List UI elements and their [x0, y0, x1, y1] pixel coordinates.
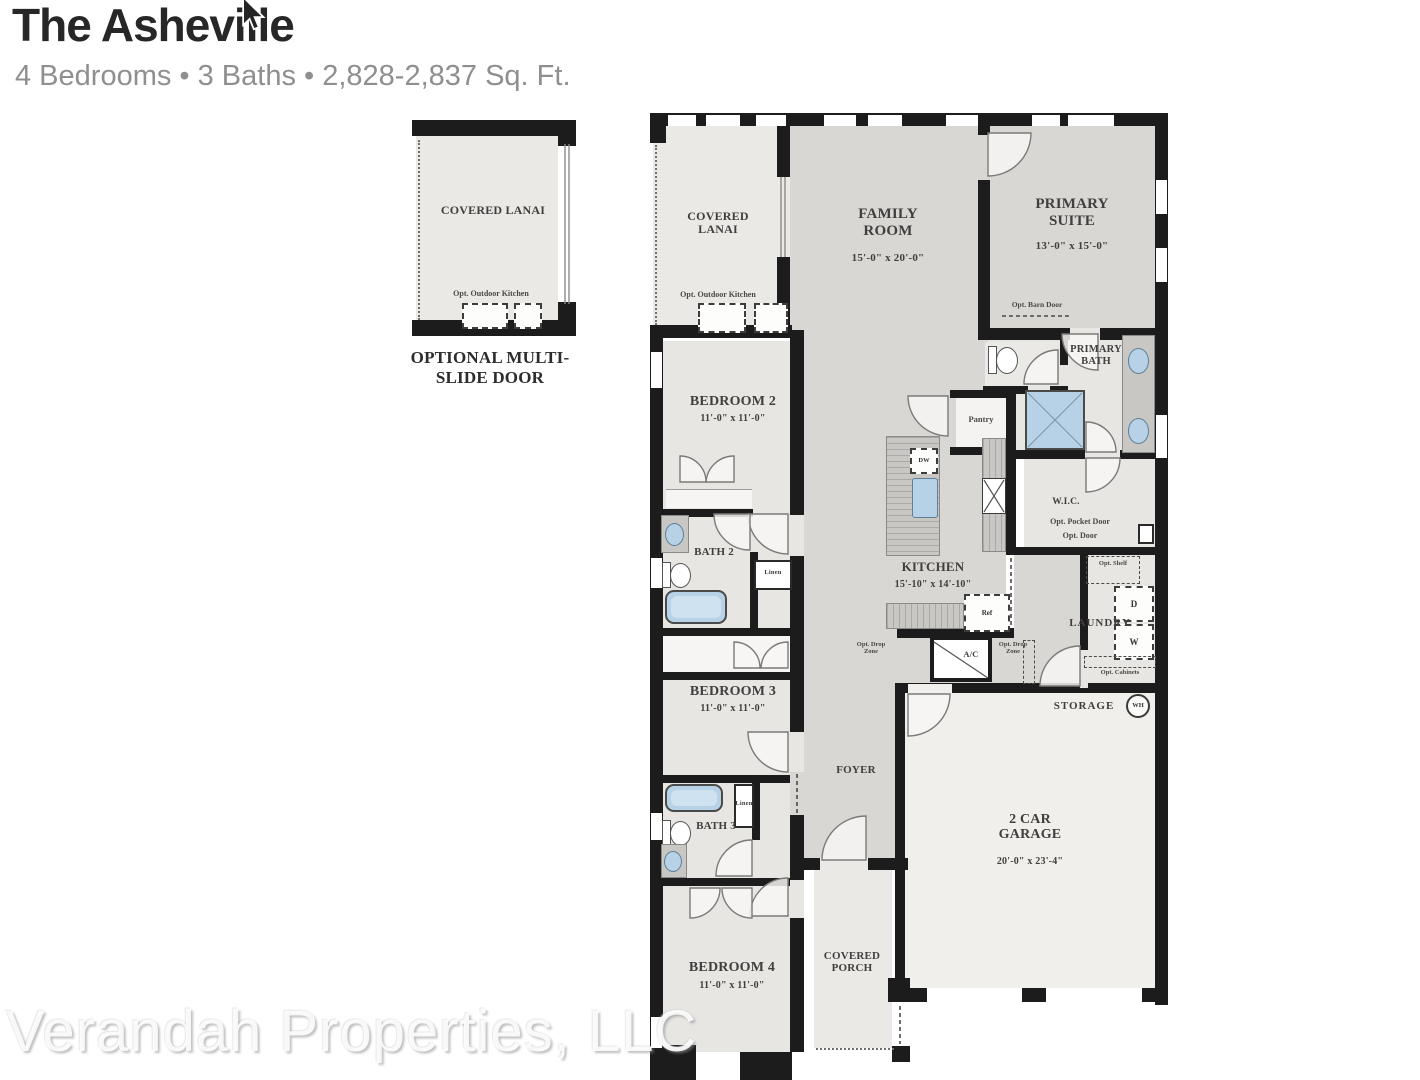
door-gap: [1070, 328, 1100, 340]
sink-icon: [1128, 418, 1149, 444]
window: [1156, 248, 1167, 282]
label-laundry: LAUNDRY: [1045, 617, 1155, 629]
toilet-icon: [670, 821, 691, 846]
shower-icon: [1025, 390, 1085, 450]
toilet-icon: [670, 563, 691, 588]
inset-lanai-label: COVERED LANAI: [438, 204, 548, 217]
wall-bath2-bottom: [663, 628, 790, 636]
window: [1156, 180, 1167, 214]
dishwasher-icon: DW: [910, 448, 938, 474]
label-bedroom4-dims: 11'-0" x 11'-0": [682, 980, 782, 991]
wall-bed4-bottom: [740, 1052, 792, 1080]
wall-family-suite: [978, 180, 990, 330]
garage-door-opening: [1046, 989, 1142, 1001]
door-gap: [908, 684, 952, 693]
label-bath3-name: BATH 3: [694, 820, 738, 832]
label-bath2-name: BATH 2: [692, 546, 736, 558]
wall: [558, 120, 576, 146]
label-primary-suite-dims: 13'-0" x 15'-0": [1012, 240, 1132, 252]
inset-outdoor-kitchen-label: Opt. Outdoor Kitchen: [428, 289, 554, 298]
wall: [412, 120, 576, 136]
water-heater-icon: WH: [1126, 694, 1150, 718]
range-icon: [982, 478, 1006, 514]
wall-right: [1155, 113, 1168, 1005]
mouse-cursor-icon: [237, 0, 267, 31]
window: [1068, 115, 1114, 126]
label-porch: COVERED PORCH: [818, 950, 886, 974]
wall-garage-bottom-c: [1142, 988, 1168, 1002]
label-wic-door: Opt. Door: [1042, 531, 1118, 540]
sink-icon: [664, 851, 682, 872]
inset-open-edge-dotted: [418, 140, 420, 320]
wall-bed3-bottom: [663, 775, 790, 783]
label-wic: W.I.C.: [1044, 497, 1088, 507]
window: [946, 115, 978, 126]
door-gap: [790, 515, 804, 556]
option-box: [1138, 524, 1154, 544]
wall-bath3-bottom: [663, 878, 790, 886]
label-lanai: COVERED LANAI: [668, 210, 768, 236]
label-primary-suite: PRIMARY SUITE: [1022, 196, 1122, 229]
porch-open-edge-dotted: [816, 1048, 894, 1050]
label-bedroom3-dims: 11'-0" x 11'-0": [684, 703, 782, 714]
window: [668, 115, 696, 126]
watermark: Verandah Properties, LLC: [6, 998, 697, 1065]
window: [651, 558, 662, 588]
label-dropzone-2: Opt. Drop Zone: [998, 641, 1028, 656]
label-bedroom3: BEDROOM 3: [678, 684, 788, 699]
wall-garage-bottom-b: [1022, 988, 1046, 1002]
toilet-icon: [996, 347, 1018, 374]
label-storage: STORAGE: [1046, 700, 1122, 712]
sink-icon: [665, 523, 684, 546]
sink-icon: [1128, 348, 1149, 374]
window: [651, 813, 662, 840]
label-kitchen-dims: 15'-10" x 14'-10": [876, 579, 990, 590]
window: [868, 115, 902, 126]
label-opt-cabinets: Opt. Cabinets: [1082, 669, 1158, 676]
wall-post: [650, 113, 666, 143]
inset-caption: OPTIONAL MULTI-SLIDE DOOR: [398, 348, 582, 389]
wall-wing-right-c: [790, 815, 804, 880]
wall-pantry-top: [950, 390, 1008, 398]
wall-wing-right-b: [790, 556, 804, 732]
label-ac: A/C: [954, 650, 988, 659]
door-gap: [1085, 450, 1120, 459]
label-lanai-opt: Opt. Outdoor Kitchen: [652, 290, 784, 299]
wall-wing-right-d: [790, 918, 804, 1052]
door-gap: [790, 732, 804, 772]
page-subtitle: 4 Bedrooms • 3 Baths • 2,828-2,837 Sq. F…: [15, 60, 571, 93]
label-bedroom2-dims: 11'-0" x 11'-0": [684, 413, 782, 424]
inset-sink-fixture: [514, 303, 542, 329]
wall-wic-top-a: [1014, 450, 1085, 459]
garage-door-opening: [927, 989, 1022, 1001]
window: [651, 352, 662, 388]
bathtub-icon: [665, 590, 727, 624]
label-garage-dims: 20'-0" x 23'-4": [974, 856, 1086, 867]
slider-gap-lanai: [777, 177, 790, 257]
inset-grill-fixture: [462, 303, 508, 329]
label-bath3-linen: Linen: [722, 800, 766, 807]
opt-cabinets-box: [1084, 656, 1156, 668]
closet-shelf-bedroom2: [666, 489, 752, 508]
wall-left: [650, 330, 663, 1052]
wall-garage-left: [895, 683, 905, 988]
label-pantry: Pantry: [958, 415, 1004, 425]
outdoor-sink-fixture: [754, 303, 788, 333]
label-dropzone-1: Opt. Drop Zone: [856, 641, 886, 656]
label-primary-bath: PRIMARY BATH: [1064, 344, 1128, 367]
kitchen-sink-icon: [912, 478, 938, 518]
washer-icon: W: [1114, 624, 1154, 660]
window: [824, 115, 856, 126]
label-bedroom2: BEDROOM 2: [678, 394, 788, 409]
label-barn-door: Opt. Barn Door: [996, 301, 1078, 310]
window: [706, 115, 740, 126]
door-gap: [790, 880, 804, 918]
label-foyer: FOYER: [828, 764, 884, 776]
front-door-gap: [820, 858, 868, 870]
closet-strip-bedroom3: [663, 636, 790, 672]
cased-opening: [790, 772, 804, 815]
floorplan-page: The Asheville 4 Bedrooms • 3 Baths • 2,8…: [0, 0, 1420, 1080]
wall-garage-bottom-a: [903, 988, 927, 1002]
door-gap: [978, 135, 990, 180]
wall-suite-bottom-a: [978, 328, 1072, 340]
wall-porch-post: [892, 1046, 910, 1062]
window: [1156, 415, 1167, 458]
label-wic-pocket: Opt. Pocket Door: [1028, 517, 1132, 526]
dropzone-counter: [886, 603, 964, 629]
label-family: FAMILY ROOM: [838, 206, 938, 239]
window: [1032, 115, 1060, 126]
wall-wic-bottom: [1014, 547, 1155, 555]
wall-wing-right-a: [790, 330, 804, 515]
refrigerator-icon: Ref: [964, 594, 1010, 632]
label-bedroom4: BEDROOM 4: [676, 960, 788, 975]
wall-suite-stub: [978, 113, 990, 135]
label-family-dims: 15'-0" x 20'-0": [828, 252, 948, 264]
label-kitchen: KITCHEN: [893, 560, 973, 574]
grill-fixture: [698, 303, 746, 333]
label-garage: 2 CAR GARAGE: [988, 812, 1072, 843]
label-opt-shelf: Opt. Shelf: [1090, 560, 1136, 567]
bathtub-icon: [665, 784, 723, 812]
label-bath2: Linen: [756, 569, 790, 576]
wall-kitchen-vert: [1006, 390, 1016, 555]
wall-bed3-top: [663, 672, 790, 680]
window: [756, 115, 786, 126]
